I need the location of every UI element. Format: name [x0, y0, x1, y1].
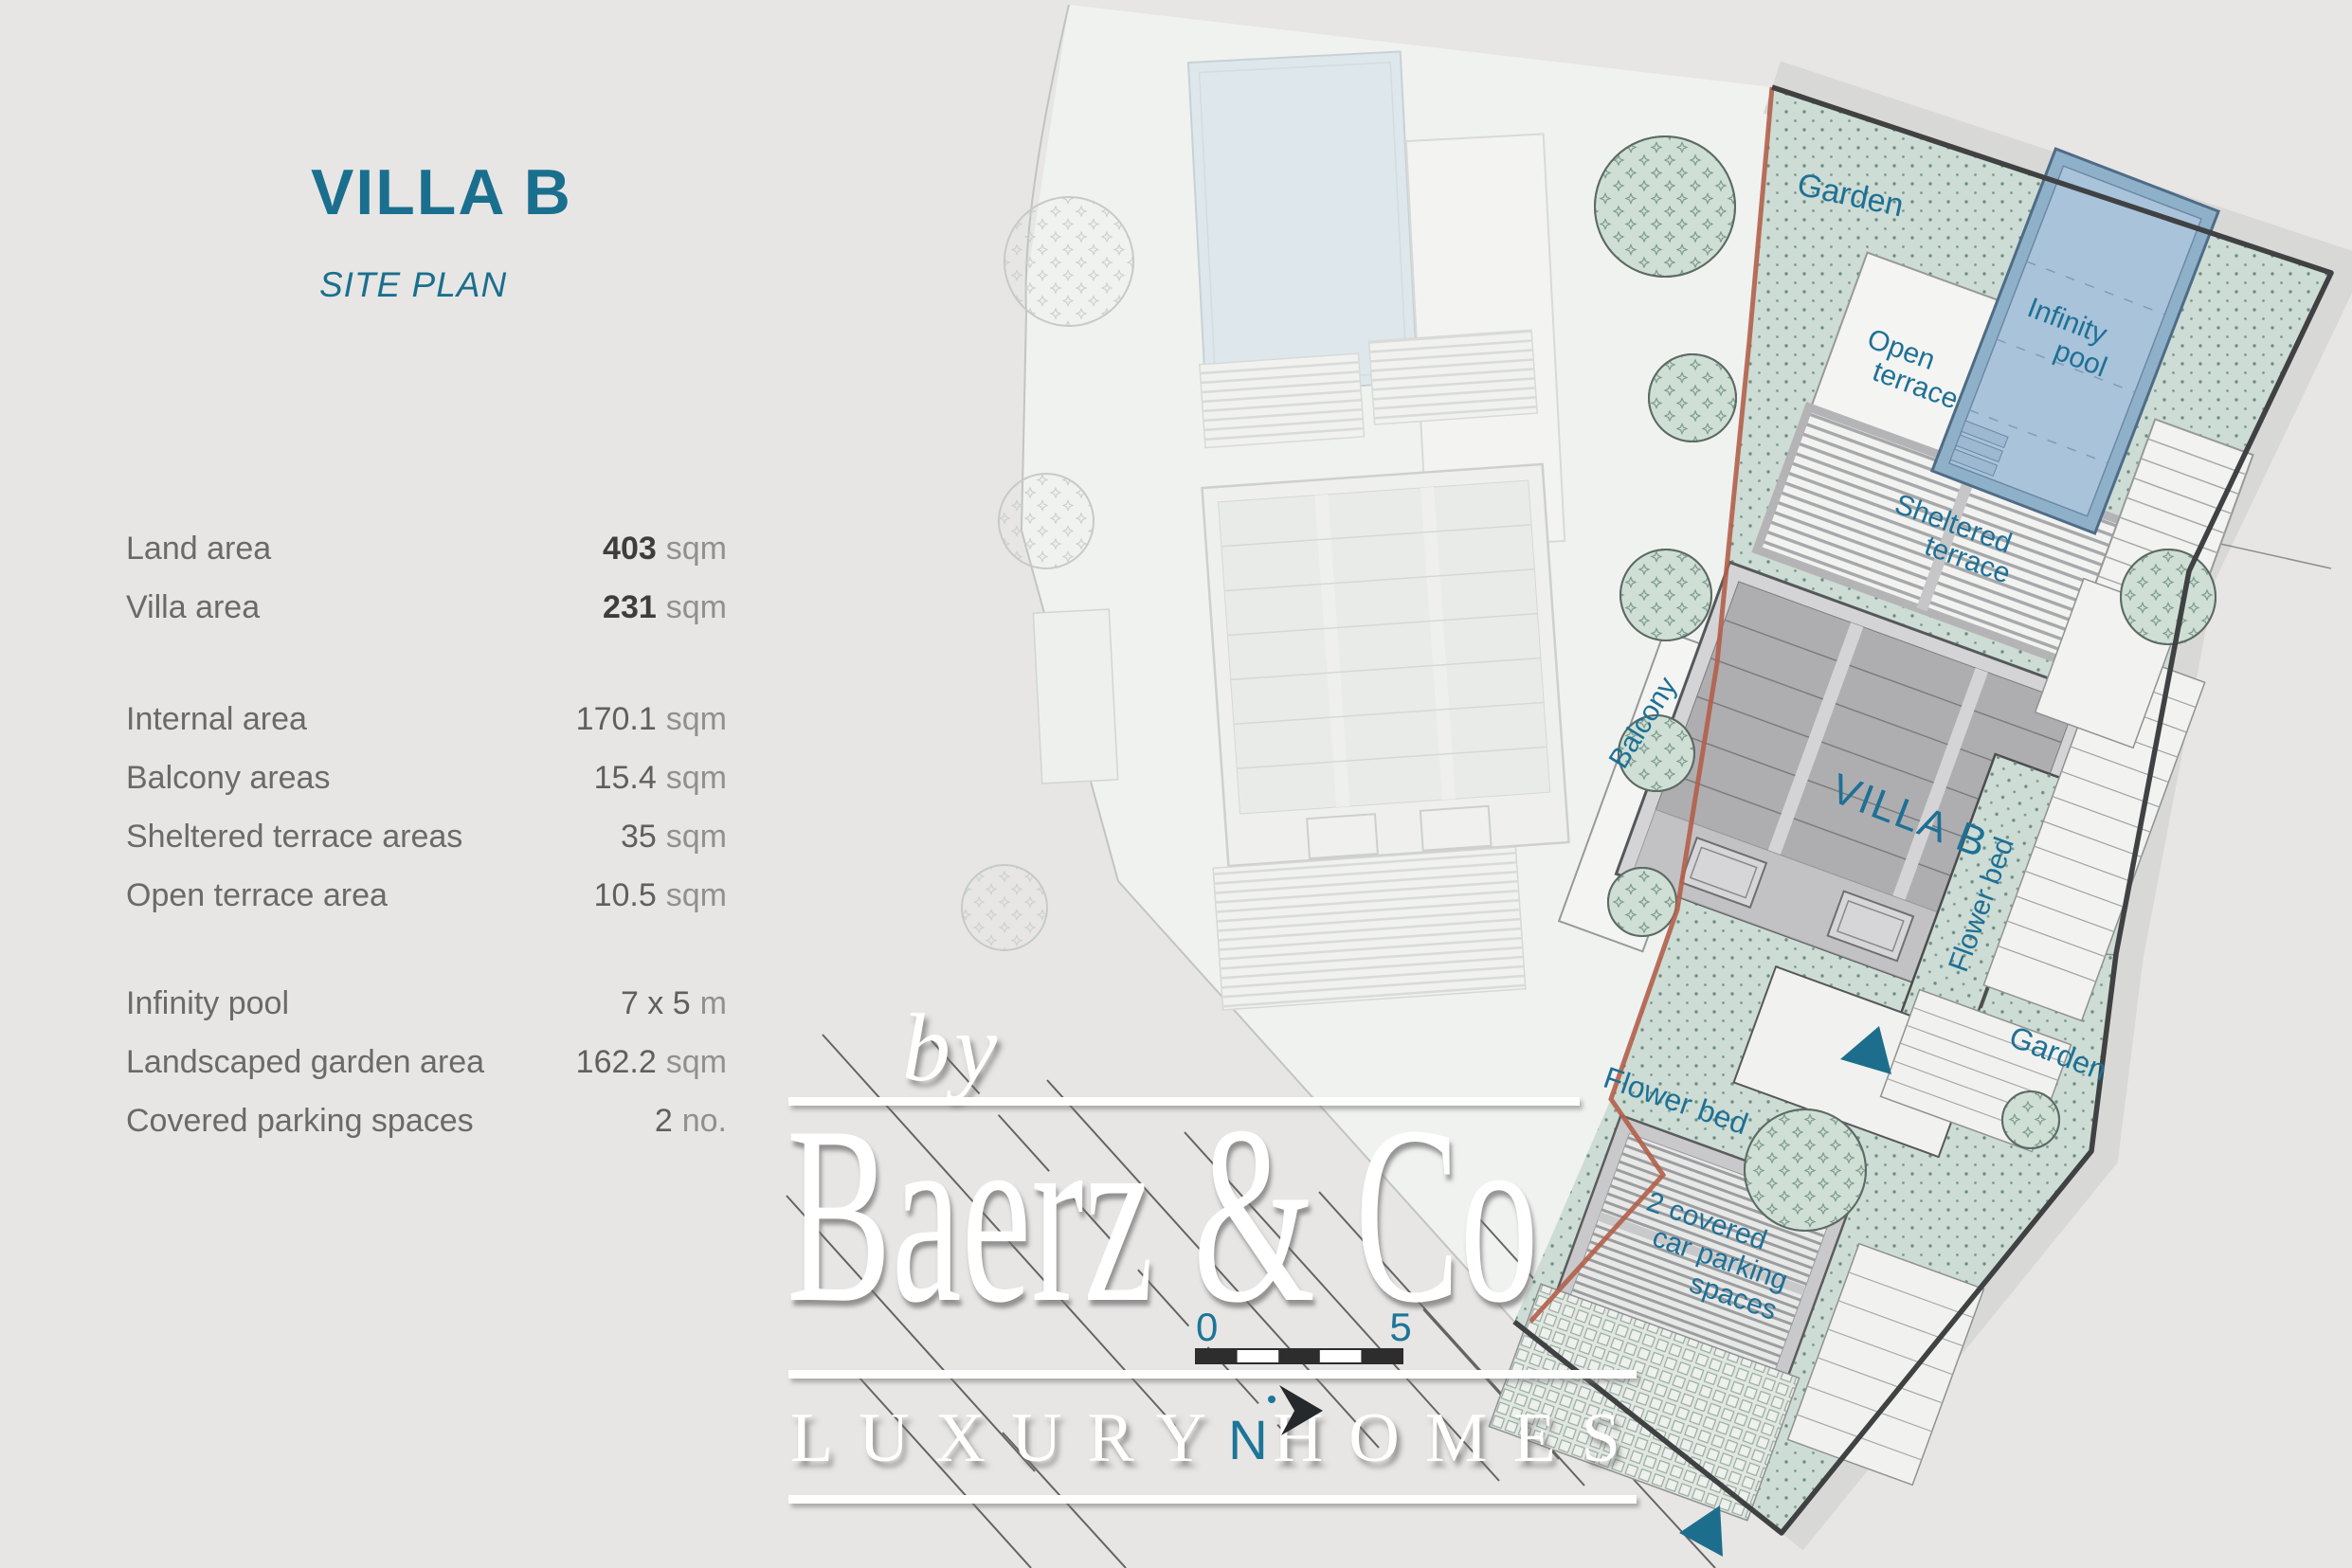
table-row: Open terrace area 10.5sqm — [126, 877, 727, 936]
table-row: Land area 403sqm — [126, 531, 727, 589]
watermark-divider-bottom — [788, 1495, 1637, 1504]
watermark-divider-mid — [788, 1370, 1637, 1379]
table-row: Sheltered terrace areas 35sqm — [126, 819, 727, 877]
table-row: Covered parking spaces 2no. — [126, 1103, 727, 1162]
area-table: Land area 403sqm Villa area 231sqm Inter… — [126, 531, 727, 1162]
page-title: VILLA B — [311, 155, 572, 229]
table-row: Villa area 231sqm — [126, 589, 727, 648]
watermark-tagline: LUXURY HOMES — [790, 1398, 1646, 1479]
table-row: Landscaped garden area 162.2sqm — [126, 1044, 727, 1103]
site-plan-page: Garden Open terrace Infinity pool Shelte… — [0, 0, 2352, 1568]
page-subtitle: SITE PLAN — [319, 265, 507, 305]
table-row: Infinity pool 7 x 5m — [126, 985, 727, 1044]
entrance-triangle-lower — [1679, 1505, 1723, 1557]
table-row: Balcony areas 15.4sqm — [126, 760, 727, 819]
ghost-building — [1202, 464, 1568, 866]
table-row: Internal area 170.1sqm — [126, 701, 727, 760]
watermark-brand: Baerz & Co — [787, 1088, 1539, 1342]
